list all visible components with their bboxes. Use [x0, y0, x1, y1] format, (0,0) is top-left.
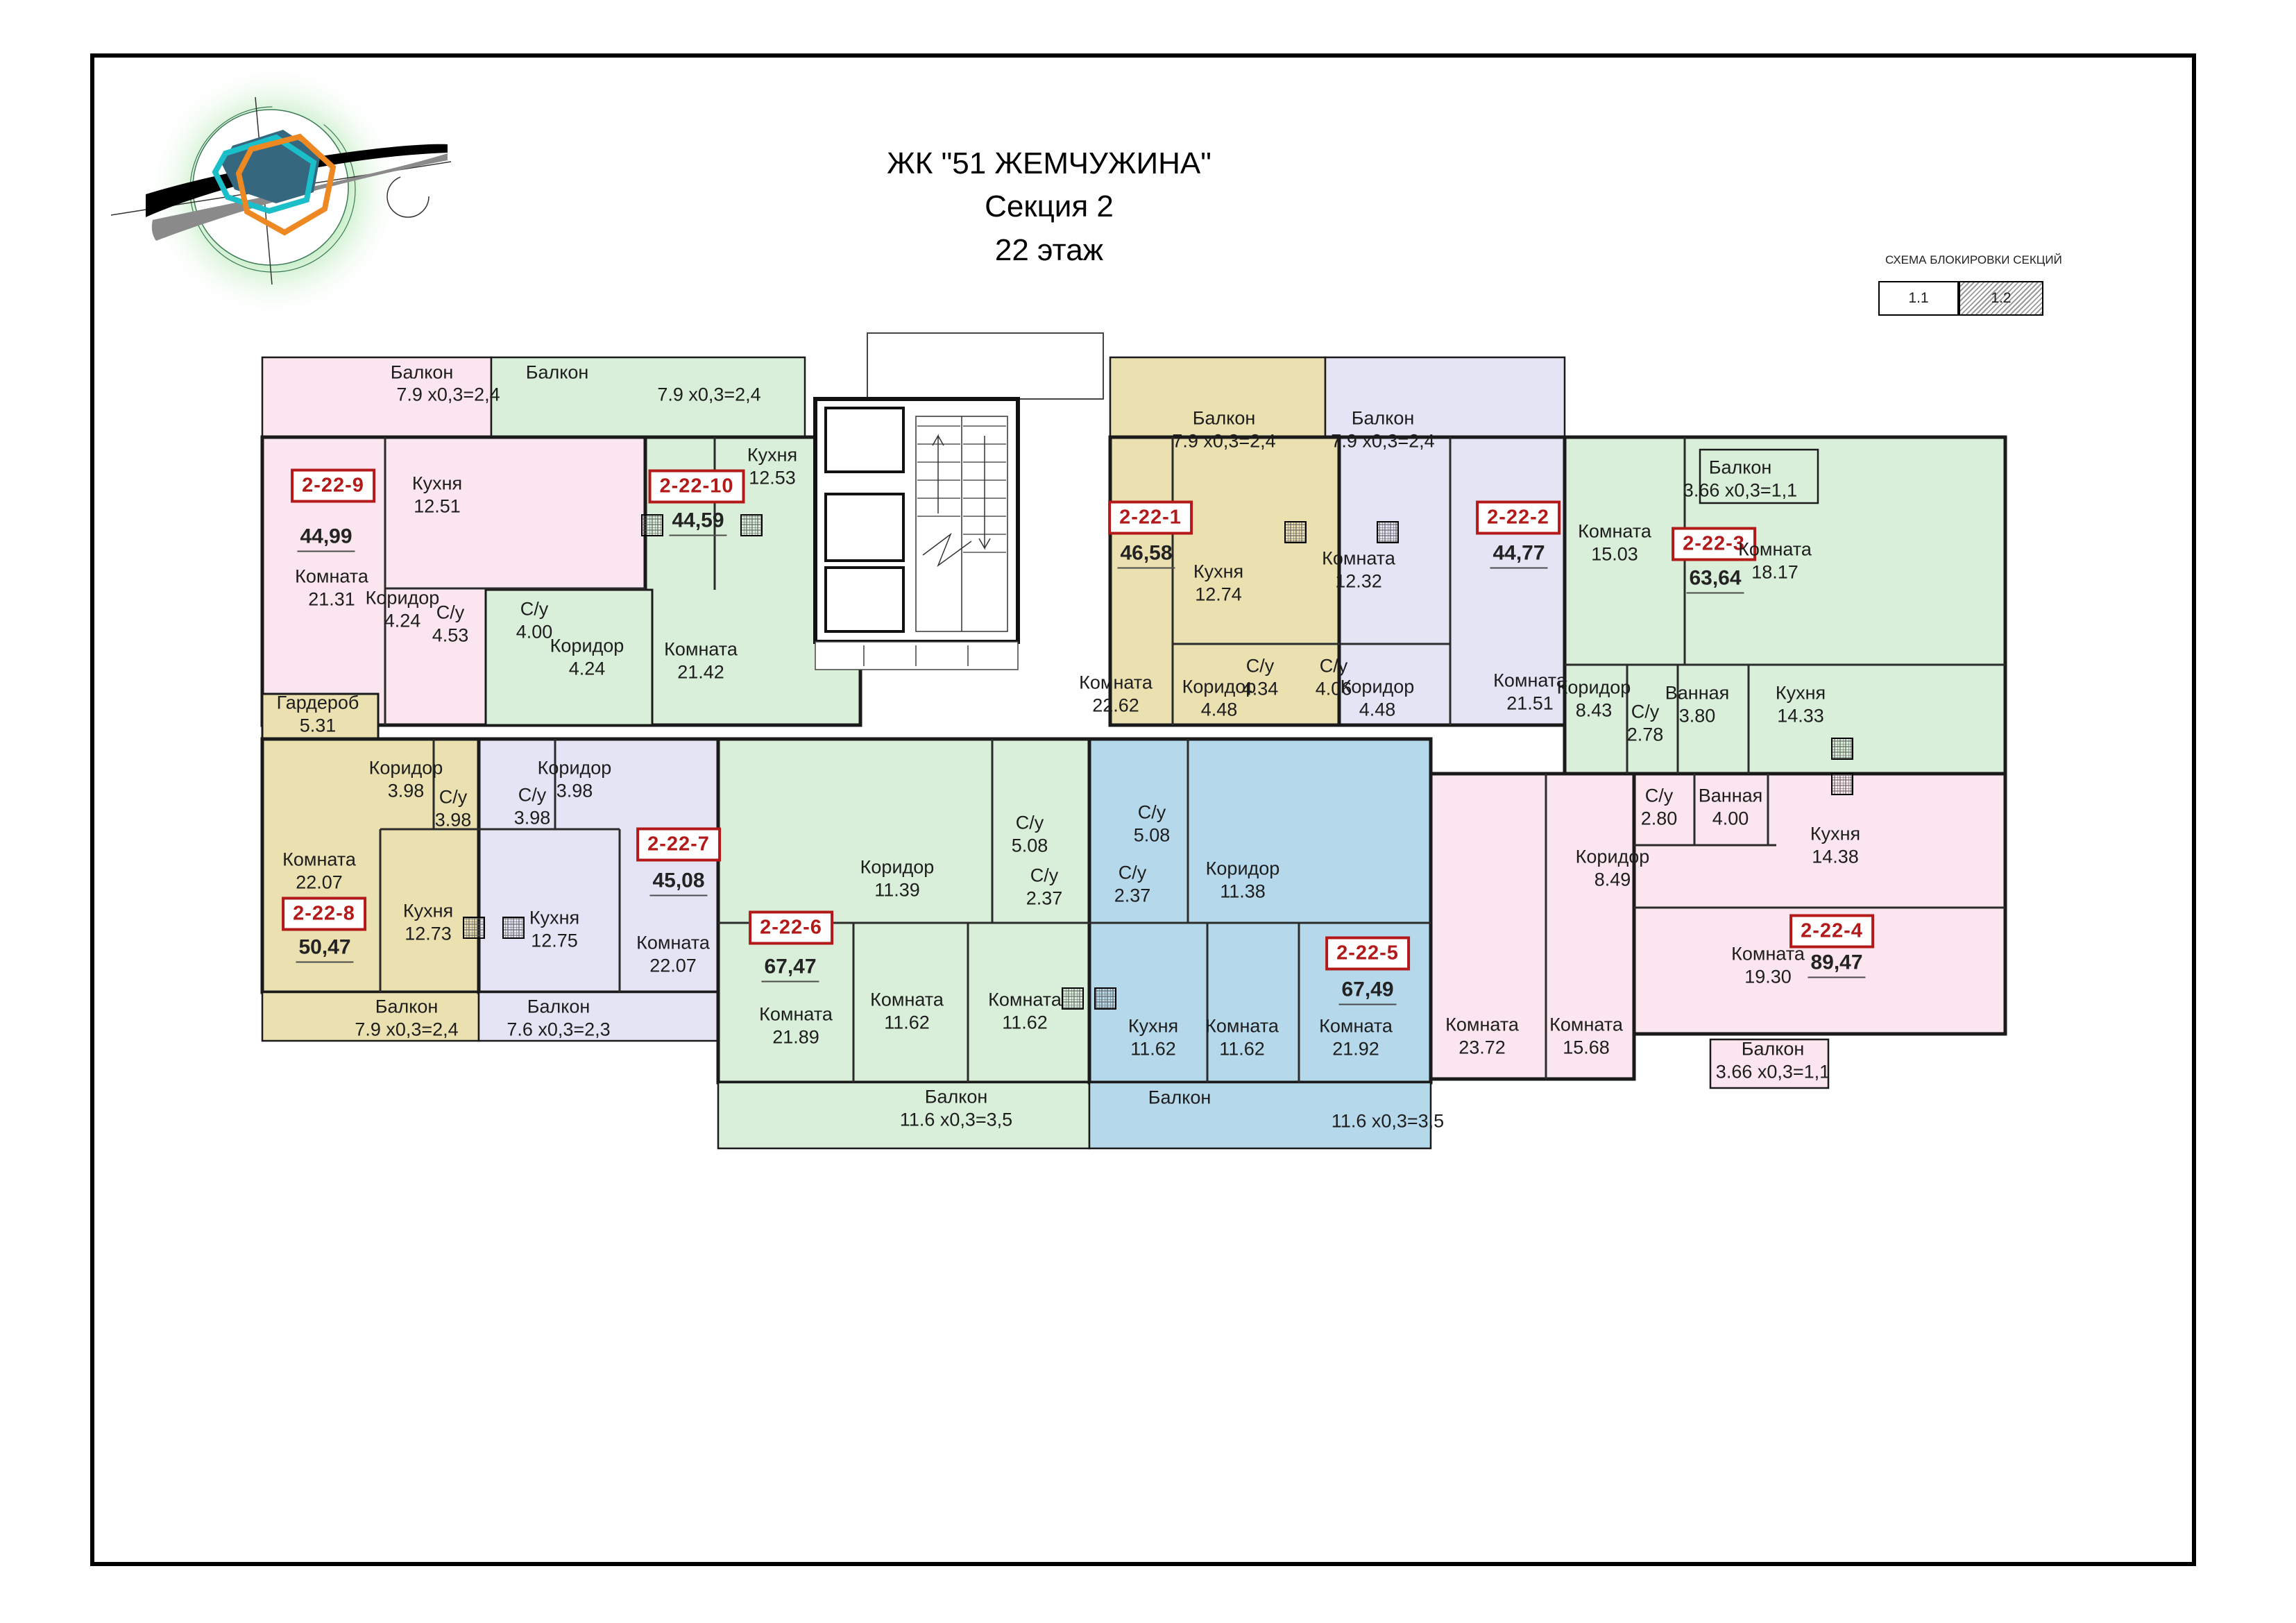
unit-2-22-1 — [1110, 437, 1339, 725]
elevator-shaft — [826, 408, 903, 472]
unit-2-22-5 — [1089, 739, 1431, 1082]
unit-2-22-4-balcony — [1710, 1039, 1828, 1088]
unit-2-22-6-balcony — [718, 1082, 1089, 1148]
unit-2-22-8-balcony — [262, 992, 479, 1041]
unit-2-22-3-balcony — [1700, 450, 1818, 503]
unit-2-22-7 — [479, 739, 718, 992]
unit-2-22-9-balcony — [262, 357, 491, 437]
unit-2-22-5-balcony — [1089, 1082, 1431, 1148]
unit-2-22-6 — [718, 739, 1089, 1082]
unit-2-22-4-right — [1634, 774, 2005, 1034]
unit-2-22-4-left — [1431, 774, 1634, 1079]
unit-2-22-10-bath-block — [486, 590, 652, 725]
unit-2-22-8-wardrobe — [262, 694, 378, 739]
unit-2-22-2 — [1339, 437, 1565, 725]
unit-2-22-10-balcony — [491, 357, 805, 437]
unit-2-22-2-balcony — [1325, 357, 1565, 437]
elevator-shaft — [826, 494, 903, 561]
unit-2-22-7-balcony — [479, 992, 718, 1041]
floor-plan-svg — [0, 0, 2296, 1623]
elevator-shaft — [826, 568, 903, 631]
unit-2-22-8 — [262, 739, 479, 992]
unit-2-22-1-balcony — [1110, 357, 1325, 437]
lobby-window-band — [815, 642, 1018, 670]
entrance-vestibule — [867, 333, 1103, 399]
